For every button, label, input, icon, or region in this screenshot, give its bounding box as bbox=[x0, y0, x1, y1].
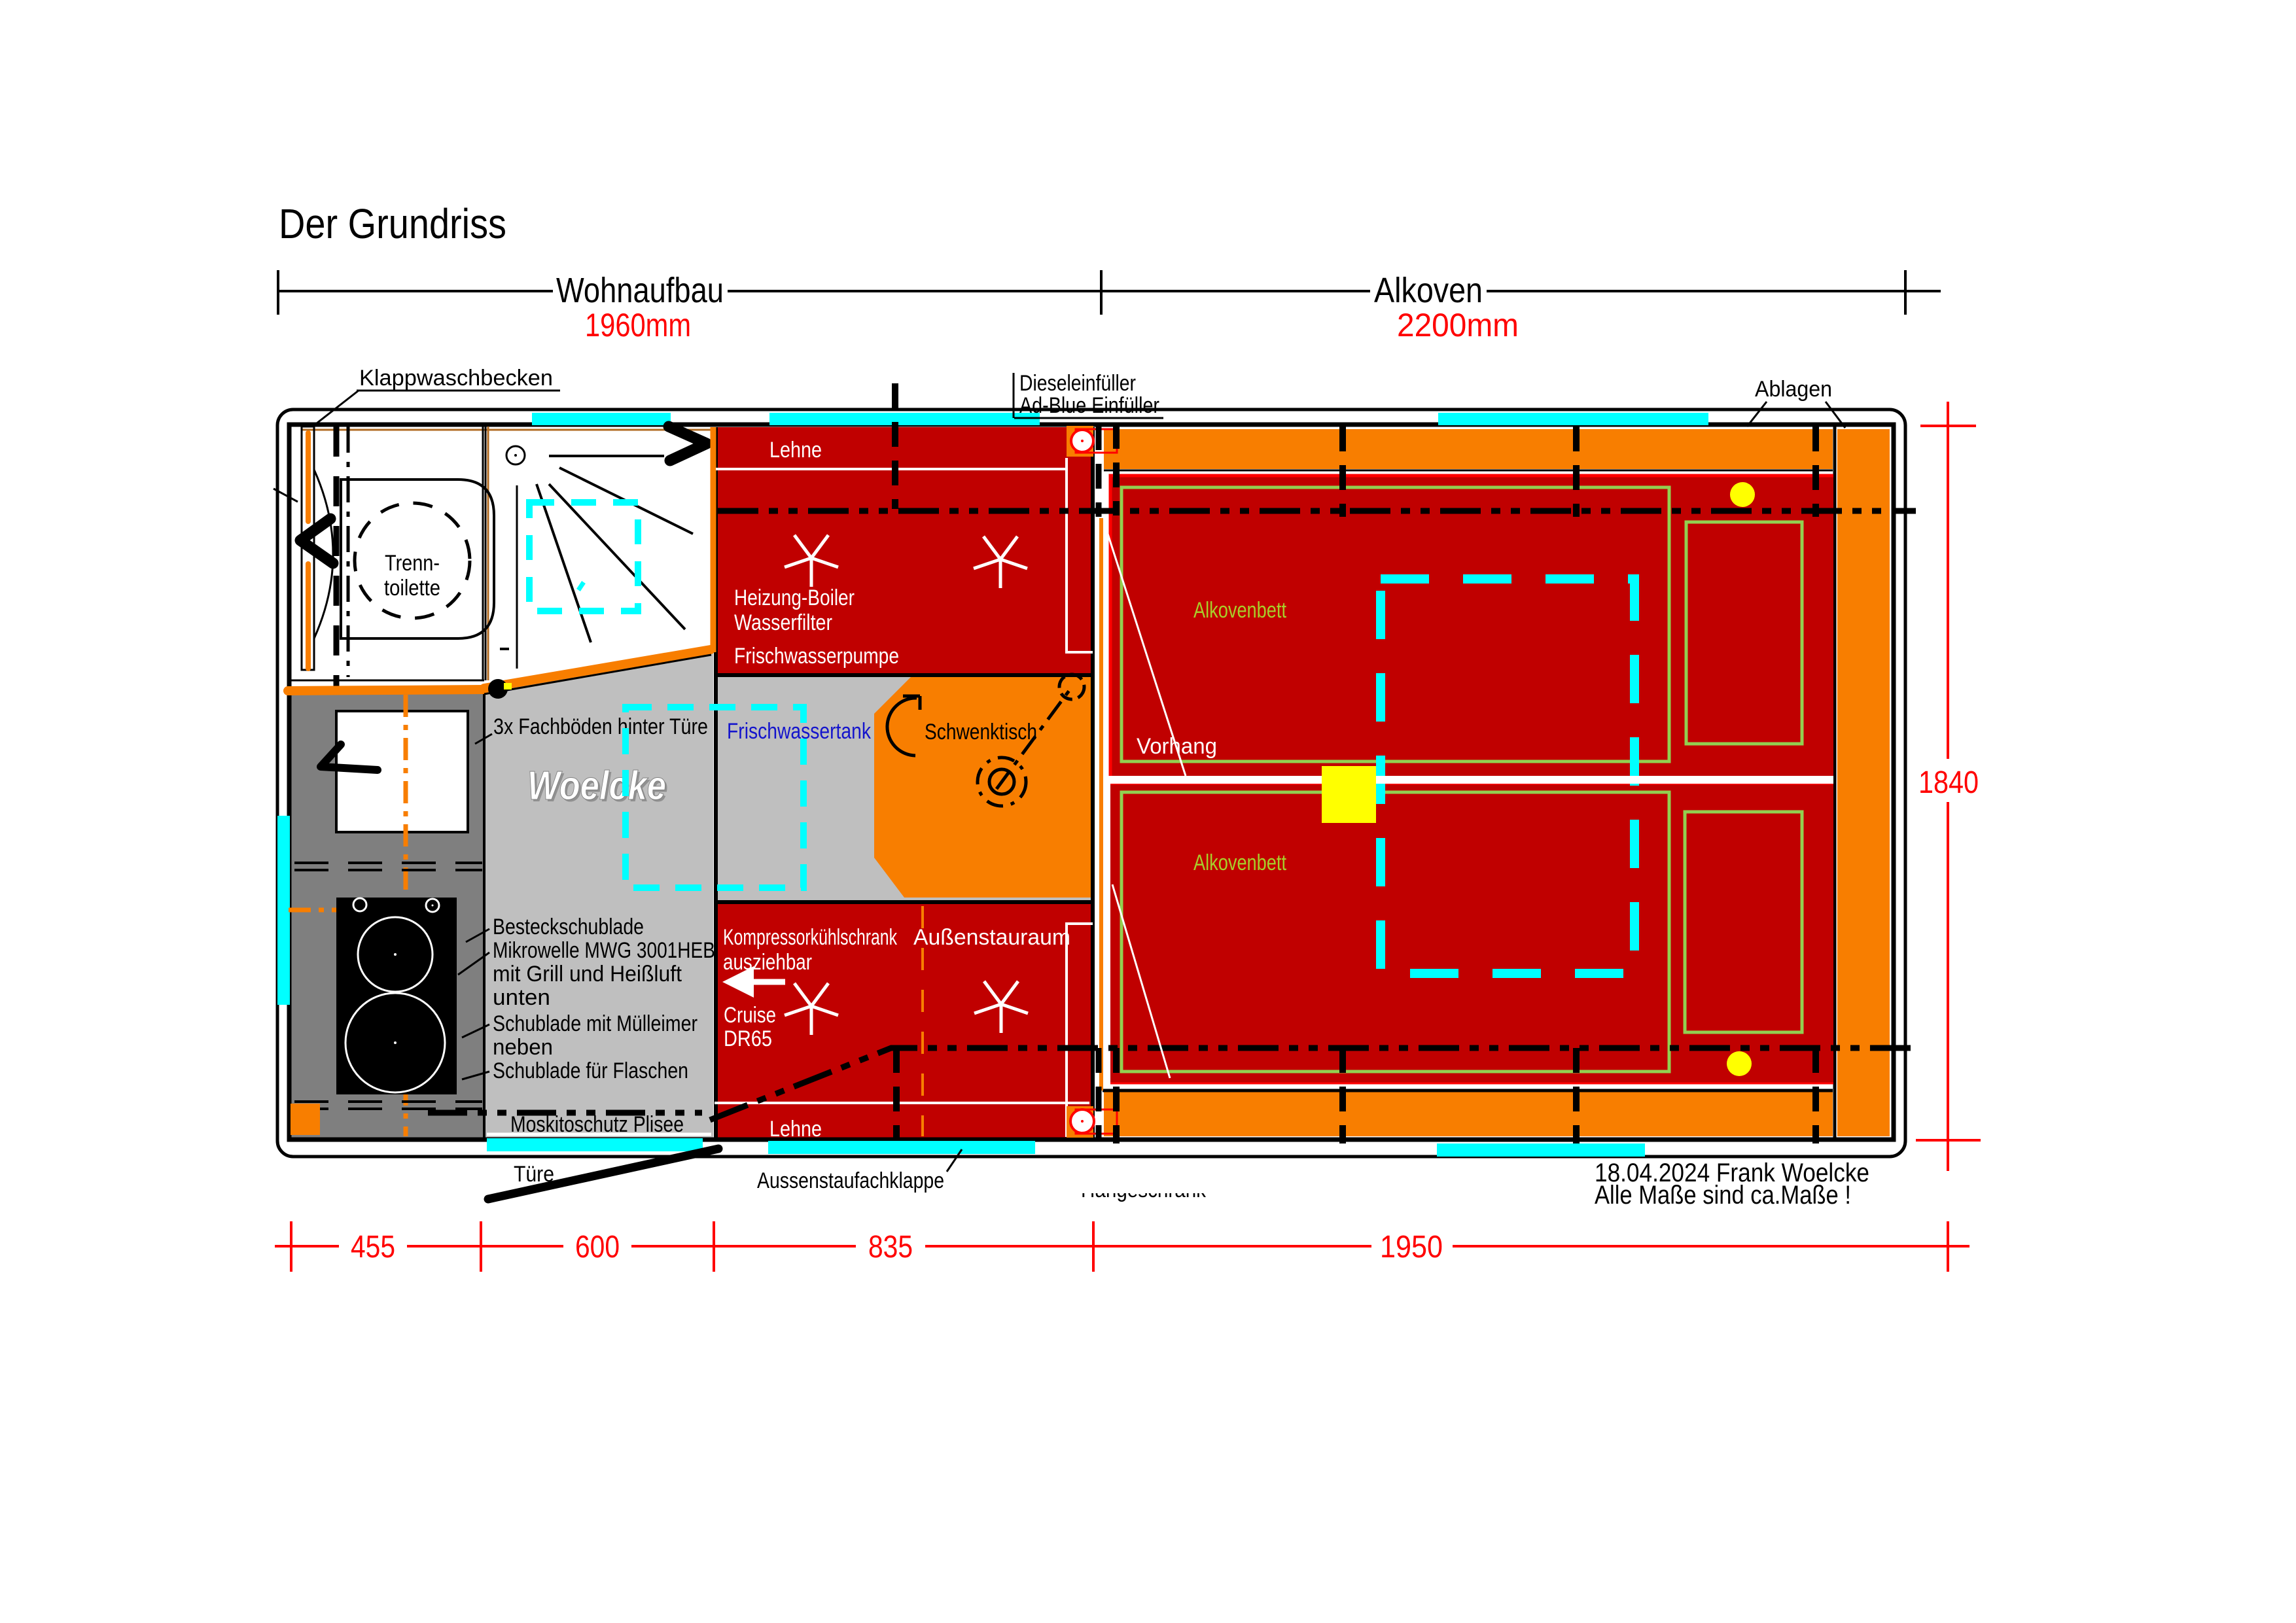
svg-text:455: 455 bbox=[351, 1230, 395, 1265]
svg-text:Außenstauraum: Außenstauraum bbox=[913, 925, 1070, 950]
svg-text:unten: unten bbox=[493, 985, 550, 1010]
svg-text:Aussenstaufachklappe: Aussenstaufachklappe bbox=[757, 1168, 944, 1193]
svg-text:1950: 1950 bbox=[1380, 1230, 1443, 1265]
svg-text:Wohnaufbau: Wohnaufbau bbox=[556, 271, 724, 310]
svg-text:Dieseleinfüller: Dieseleinfüller bbox=[1019, 371, 1136, 396]
svg-text:neben: neben bbox=[493, 1035, 553, 1060]
svg-text:Ad-Blue Einfüller: Ad-Blue Einfüller bbox=[1019, 393, 1159, 418]
svg-text:Heizung-Boiler: Heizung-Boiler bbox=[734, 585, 855, 610]
svg-text:2200mm: 2200mm bbox=[1397, 307, 1519, 343]
svg-text:Cruise: Cruise bbox=[724, 1003, 776, 1028]
svg-text:Kompressorkühlschrank: Kompressorkühlschrank bbox=[723, 925, 898, 950]
svg-text:Trenn-: Trenn- bbox=[385, 551, 440, 576]
svg-text:Besteckschublade: Besteckschublade bbox=[493, 915, 644, 939]
svg-text:Türe: Türe bbox=[514, 1162, 554, 1187]
svg-text:mit Grill und Heißluft: mit Grill und Heißluft bbox=[493, 962, 682, 986]
svg-text:Alle Maße sind ca.Maße !: Alle Maße sind ca.Maße ! bbox=[1595, 1181, 1851, 1210]
svg-text:835: 835 bbox=[868, 1230, 913, 1265]
svg-text:Frischwasserpumpe: Frischwasserpumpe bbox=[734, 644, 899, 669]
svg-text:Schublade für Flaschen: Schublade für Flaschen bbox=[493, 1058, 688, 1083]
svg-text:Lehne: Lehne bbox=[769, 438, 822, 462]
svg-text:Klappwaschbecken: Klappwaschbecken bbox=[359, 366, 553, 391]
svg-text:1840: 1840 bbox=[1918, 765, 1979, 800]
svg-text:DR65: DR65 bbox=[724, 1026, 772, 1051]
svg-text:Woelcke: Woelcke bbox=[527, 763, 666, 809]
svg-text:Ablagen: Ablagen bbox=[1755, 377, 1832, 402]
svg-text:Wasserfilter: Wasserfilter bbox=[734, 610, 832, 635]
svg-text:Schublade mit Mülleimer: Schublade mit Mülleimer bbox=[493, 1011, 698, 1036]
svg-text:Alkoven: Alkoven bbox=[1374, 271, 1483, 310]
svg-text:3x Fachböden hinter Türe: 3x Fachböden hinter Türe bbox=[493, 714, 708, 739]
svg-text:Alkovenbett: Alkovenbett bbox=[1193, 850, 1286, 875]
svg-text:Vorhang: Vorhang bbox=[1137, 734, 1217, 759]
svg-text:Alkovenbett: Alkovenbett bbox=[1193, 598, 1286, 623]
svg-text:Frischwassertank: Frischwassertank bbox=[727, 719, 872, 744]
svg-text:Der Grundriss: Der Grundriss bbox=[279, 200, 506, 247]
svg-text:ausziehbar: ausziehbar bbox=[723, 950, 812, 975]
svg-text:toilette: toilette bbox=[384, 576, 440, 601]
svg-text:600: 600 bbox=[575, 1230, 620, 1265]
svg-text:Mikrowelle MWG 3001HEB: Mikrowelle MWG 3001HEB bbox=[493, 938, 715, 963]
svg-text:Lehne: Lehne bbox=[769, 1117, 822, 1142]
svg-text:Schwenktisch: Schwenktisch bbox=[925, 720, 1037, 744]
svg-text:1960mm: 1960mm bbox=[585, 307, 691, 343]
